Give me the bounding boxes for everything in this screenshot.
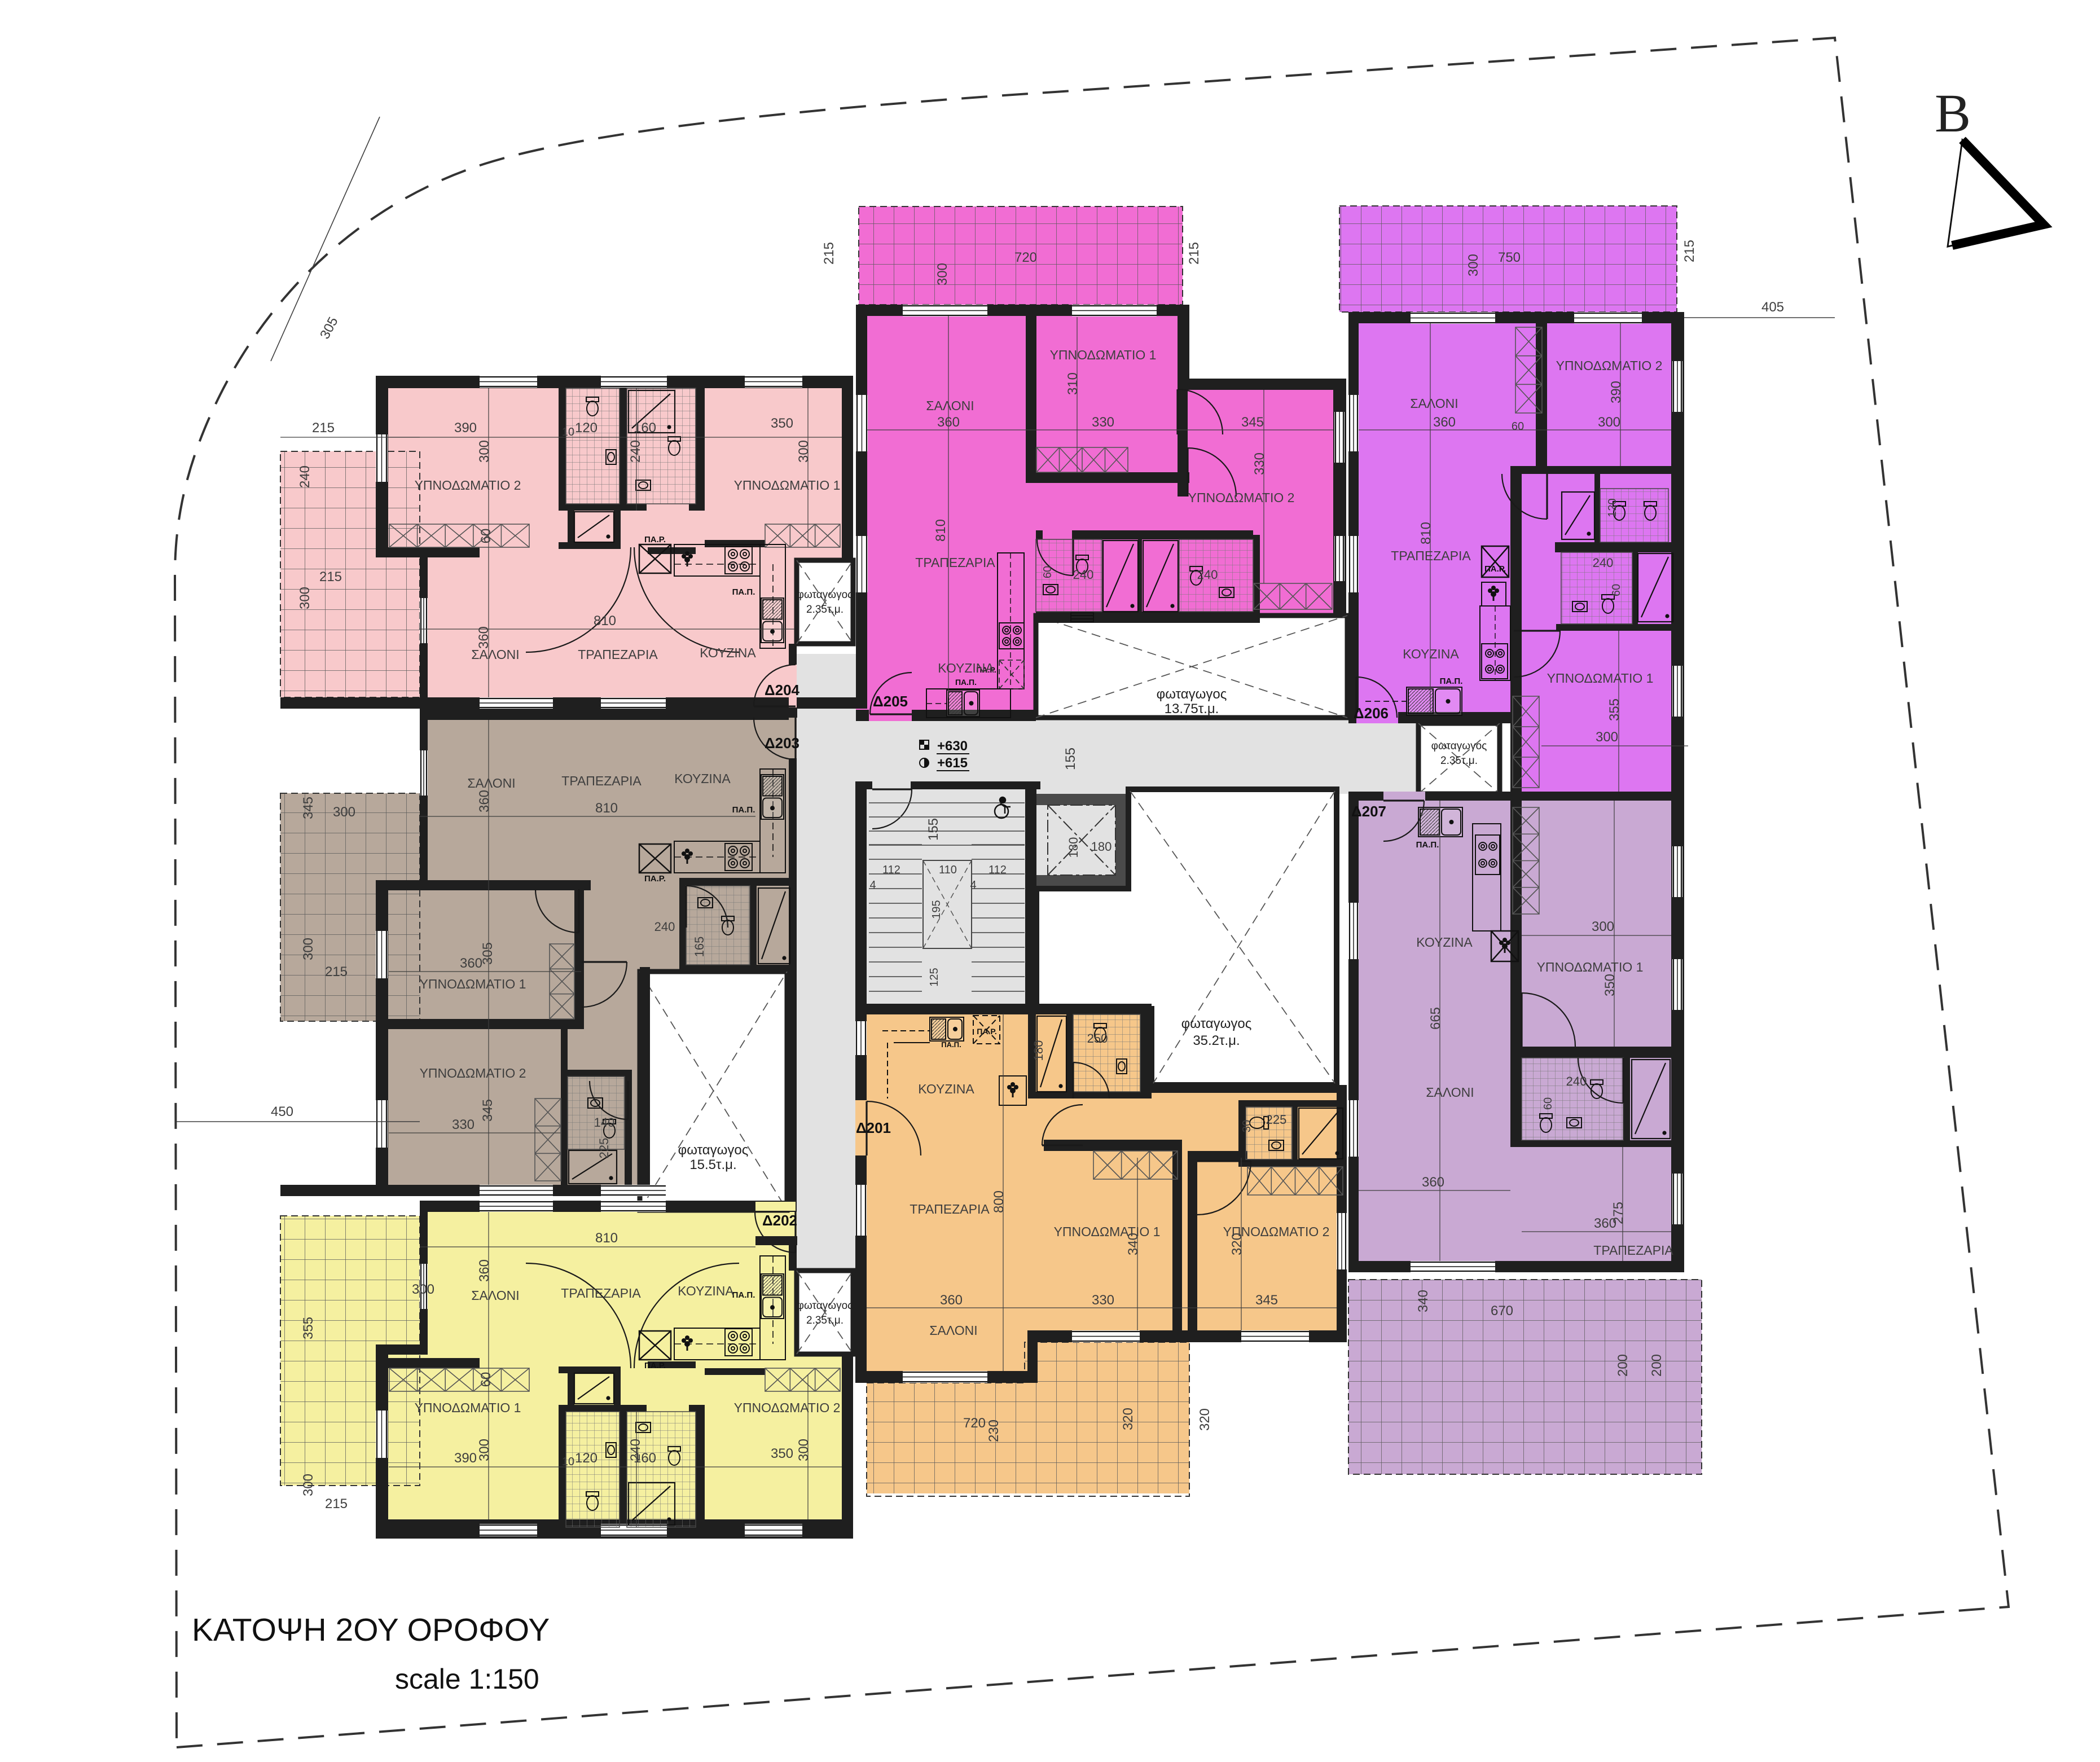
svg-text:60: 60 xyxy=(478,529,494,544)
svg-text:ΥΠΝΟΔΩΜΑΤΙΟ 1: ΥΠΝΟΔΩΜΑΤΙΟ 1 xyxy=(1537,960,1644,974)
svg-text:60: 60 xyxy=(1542,1097,1554,1110)
svg-text:ΠΑ.Π.: ΠΑ.Π. xyxy=(1416,840,1439,850)
svg-text:330: 330 xyxy=(1092,415,1114,430)
svg-text:360: 360 xyxy=(477,1259,492,1282)
svg-text:215: 215 xyxy=(325,1496,348,1511)
svg-text:4: 4 xyxy=(970,879,976,891)
svg-text:30: 30 xyxy=(1241,1120,1253,1132)
svg-text:225: 225 xyxy=(597,1138,611,1159)
svg-text:13.75τ.μ.: 13.75τ.μ. xyxy=(1165,701,1219,717)
svg-text:+615: +615 xyxy=(937,755,968,771)
svg-text:240: 240 xyxy=(1566,1074,1587,1088)
svg-text:230: 230 xyxy=(986,1420,1001,1442)
svg-text:300: 300 xyxy=(935,263,950,285)
svg-text:240: 240 xyxy=(628,440,643,463)
svg-text:10: 10 xyxy=(562,1456,574,1468)
svg-text:ΥΠΝΟΔΩΜΑΤΙΟ 1: ΥΠΝΟΔΩΜΑΤΙΟ 1 xyxy=(1054,1224,1161,1239)
svg-text:355: 355 xyxy=(1607,698,1622,721)
svg-text:300: 300 xyxy=(796,1439,811,1461)
svg-text:ΣΑΛΟΝΙ: ΣΑΛΟΝΙ xyxy=(1426,1085,1474,1100)
svg-text:ΤΡΑΠΕΖΑΡΙΑ: ΤΡΑΠΕΖΑΡΙΑ xyxy=(561,774,642,788)
svg-text:ΣΑΛΟΝΙ: ΣΑΛΟΝΙ xyxy=(926,398,974,413)
svg-text:60: 60 xyxy=(478,1372,494,1387)
svg-text:15.5τ.μ.: 15.5τ.μ. xyxy=(689,1157,736,1172)
svg-text:215: 215 xyxy=(1187,242,1202,265)
svg-text:360: 360 xyxy=(940,1293,963,1308)
svg-text:Δ206: Δ206 xyxy=(1354,705,1389,722)
svg-text:200: 200 xyxy=(1615,1354,1631,1377)
svg-text:300: 300 xyxy=(1598,415,1620,430)
svg-text:300: 300 xyxy=(477,1439,492,1461)
svg-text:350: 350 xyxy=(1602,974,1618,996)
svg-text:310: 310 xyxy=(1065,372,1080,395)
svg-text:360: 360 xyxy=(460,956,482,971)
svg-text:200: 200 xyxy=(1649,1354,1664,1377)
svg-text:300: 300 xyxy=(412,1282,434,1297)
svg-text:φωταγωγος: φωταγωγος xyxy=(1157,687,1227,702)
svg-text:155: 155 xyxy=(926,818,941,841)
svg-text:ΥΠΝΟΔΩΜΑΤΙΟ 1: ΥΠΝΟΔΩΜΑΤΙΟ 1 xyxy=(1050,348,1157,362)
svg-text:ΠΑ.Ρ.: ΠΑ.Ρ. xyxy=(644,535,666,544)
svg-text:φωταγωγος: φωταγωγος xyxy=(1431,740,1487,752)
svg-text:ΥΠΝΟΔΩΜΑΤΙΟ 1: ΥΠΝΟΔΩΜΑΤΙΟ 1 xyxy=(420,977,526,991)
svg-text:ΣΑΛΟΝΙ: ΣΑΛΟΝΙ xyxy=(471,1288,519,1303)
svg-text:810: 810 xyxy=(595,1231,618,1246)
svg-text:390: 390 xyxy=(1609,381,1624,403)
svg-text:ΥΠΝΟΔΩΜΑΤΙΟ 2: ΥΠΝΟΔΩΜΑΤΙΟ 2 xyxy=(1188,490,1295,505)
svg-text:ΥΠΝΟΔΩΜΑΤΙΟ 2: ΥΠΝΟΔΩΜΑΤΙΟ 2 xyxy=(1556,358,1663,373)
svg-text:720: 720 xyxy=(1014,250,1037,265)
svg-text:ΚΟΥΖΙΝΑ: ΚΟΥΖΙΝΑ xyxy=(674,771,731,786)
svg-text:450: 450 xyxy=(271,1104,293,1119)
svg-text:180: 180 xyxy=(1031,1040,1045,1061)
svg-text:800: 800 xyxy=(991,1190,1007,1213)
svg-text:330: 330 xyxy=(1092,1293,1114,1308)
svg-text:275: 275 xyxy=(1611,1202,1626,1224)
svg-text:Δ203: Δ203 xyxy=(765,735,799,752)
svg-text:ΚΟΥΖΙΝΑ: ΚΟΥΖΙΝΑ xyxy=(1416,935,1473,950)
svg-text:ΚΑΤΟΨΗ 2ΟΥ ΟΡΟΦΟΥ: ΚΑΤΟΨΗ 2ΟΥ ΟΡΟΦΟΥ xyxy=(192,1612,550,1648)
svg-text:300: 300 xyxy=(333,805,355,820)
svg-text:355: 355 xyxy=(301,1317,316,1339)
svg-text:140: 140 xyxy=(594,1115,615,1130)
svg-text:ΣΑΛΟΝΙ: ΣΑΛΟΝΙ xyxy=(1410,396,1458,411)
svg-text:300: 300 xyxy=(1466,254,1481,276)
svg-text:112: 112 xyxy=(882,864,900,876)
svg-text:225: 225 xyxy=(1266,1113,1287,1127)
svg-text:ΥΠΝΟΔΩΜΑΤΙΟ 1: ΥΠΝΟΔΩΜΑΤΙΟ 1 xyxy=(415,1400,521,1415)
svg-text:240: 240 xyxy=(1593,556,1614,570)
svg-text:φωταγωγος: φωταγωγος xyxy=(678,1143,749,1158)
svg-text:ΤΡΑΠΕΖΑΡΙΑ: ΤΡΑΠΕΖΑΡΙΑ xyxy=(1391,548,1471,563)
svg-text:φωταγωγος: φωταγωγος xyxy=(797,1300,853,1312)
svg-text:810: 810 xyxy=(595,801,618,816)
svg-text:120: 120 xyxy=(575,1451,598,1466)
svg-text:120: 120 xyxy=(1606,498,1619,517)
svg-text:240: 240 xyxy=(1197,568,1218,582)
svg-text:305: 305 xyxy=(480,942,495,965)
svg-text:ΤΡΑΠΕΖΑΡΙΑ: ΤΡΑΠΕΖΑΡΙΑ xyxy=(915,555,995,570)
svg-text:240: 240 xyxy=(1073,568,1094,582)
svg-text:215: 215 xyxy=(1682,240,1697,262)
svg-text:300: 300 xyxy=(301,938,316,960)
svg-text:ΥΠΝΟΔΩΜΑΤΙΟ 1: ΥΠΝΟΔΩΜΑΤΙΟ 1 xyxy=(734,478,841,493)
svg-text:+630: +630 xyxy=(937,739,968,754)
svg-text:360: 360 xyxy=(1433,415,1456,430)
svg-text:240: 240 xyxy=(297,465,313,488)
svg-text:300: 300 xyxy=(301,1474,316,1496)
svg-text:ΥΠΝΟΔΩΜΑΤΙΟ 2: ΥΠΝΟΔΩΜΑΤΙΟ 2 xyxy=(420,1066,526,1080)
svg-text:ΠΑ.Ρ.: ΠΑ.Ρ. xyxy=(644,1361,666,1370)
svg-text:Δ207: Δ207 xyxy=(1351,803,1386,820)
svg-text:320: 320 xyxy=(1121,1408,1136,1430)
svg-text:345: 345 xyxy=(480,1099,495,1122)
svg-text:180: 180 xyxy=(1091,840,1112,854)
svg-text:Δ202: Δ202 xyxy=(762,1212,797,1229)
svg-text:750: 750 xyxy=(1498,250,1521,265)
svg-text:ΚΟΥΖΙΝΑ: ΚΟΥΖΙΝΑ xyxy=(700,645,756,660)
svg-text:ΚΟΥΖΙΝΑ: ΚΟΥΖΙΝΑ xyxy=(918,1082,974,1096)
svg-text:390: 390 xyxy=(454,420,477,436)
svg-text:ΤΡΑΠΕΖΑΡΙΑ: ΤΡΑΠΕΖΑΡΙΑ xyxy=(578,647,658,662)
svg-text:345: 345 xyxy=(1255,1293,1278,1308)
svg-text:340: 340 xyxy=(1126,1233,1141,1255)
svg-text:320: 320 xyxy=(1229,1233,1245,1255)
svg-text:810: 810 xyxy=(1418,522,1434,544)
svg-text:810: 810 xyxy=(933,519,948,542)
svg-text:240: 240 xyxy=(628,1439,643,1461)
svg-text:ΠΑ.Π.: ΠΑ.Π. xyxy=(732,1290,755,1300)
svg-text:112: 112 xyxy=(989,864,1007,876)
svg-text:120: 120 xyxy=(575,420,598,436)
svg-text:345: 345 xyxy=(301,797,316,819)
svg-text:ΠΑ.Π.: ΠΑ.Π. xyxy=(732,587,755,597)
svg-text:360: 360 xyxy=(476,626,491,649)
svg-text:390: 390 xyxy=(454,1451,477,1466)
svg-text:195: 195 xyxy=(930,900,943,919)
svg-text:ΠΑ.Π.: ΠΑ.Π. xyxy=(1440,676,1463,686)
svg-text:110: 110 xyxy=(939,864,957,876)
svg-text:300: 300 xyxy=(796,440,811,463)
svg-text:35.2τ.μ.: 35.2τ.μ. xyxy=(1193,1033,1240,1048)
svg-text:665: 665 xyxy=(1428,1007,1443,1030)
svg-text:215: 215 xyxy=(821,242,837,265)
svg-text:60: 60 xyxy=(1512,420,1524,433)
svg-text:215: 215 xyxy=(319,569,342,585)
svg-text:2.35τ.μ.: 2.35τ.μ. xyxy=(806,1315,843,1326)
svg-text:180: 180 xyxy=(1066,837,1080,858)
svg-text:345: 345 xyxy=(1241,415,1264,430)
svg-text:scale 1:150: scale 1:150 xyxy=(395,1663,539,1695)
svg-text:810: 810 xyxy=(594,613,616,629)
svg-text:ΚΟΥΖΙΝΑ: ΚΟΥΖΙΝΑ xyxy=(938,661,994,675)
svg-text:ΣΑΛΟΝΙ: ΣΑΛΟΝΙ xyxy=(929,1323,977,1338)
svg-text:2.35τ.μ.: 2.35τ.μ. xyxy=(1440,755,1478,767)
svg-text:φωταγωγος: φωταγωγος xyxy=(1181,1016,1252,1031)
svg-text:B: B xyxy=(1935,83,1971,143)
svg-text:ΣΑΛΟΝΙ: ΣΑΛΟΝΙ xyxy=(467,776,515,790)
svg-text:ΠΑ.Π.: ΠΑ.Π. xyxy=(941,1040,961,1049)
svg-text:215: 215 xyxy=(312,420,335,436)
svg-text:φωταγωγος: φωταγωγος xyxy=(797,589,853,601)
svg-text:ΠΑ.Π.: ΠΑ.Π. xyxy=(732,805,755,815)
svg-text:10: 10 xyxy=(562,426,574,438)
svg-text:320: 320 xyxy=(1197,1408,1212,1431)
svg-text:ΚΟΥΖΙΝΑ: ΚΟΥΖΙΝΑ xyxy=(1403,647,1459,661)
svg-text:240: 240 xyxy=(654,920,675,934)
svg-text:60: 60 xyxy=(1610,584,1623,596)
svg-text:350: 350 xyxy=(771,1446,793,1461)
svg-text:ΥΠΝΟΔΩΜΑΤΙΟ 2: ΥΠΝΟΔΩΜΑΤΙΟ 2 xyxy=(734,1400,841,1415)
svg-text:Δ201: Δ201 xyxy=(856,1119,891,1136)
svg-text:165: 165 xyxy=(692,937,706,957)
svg-text:360: 360 xyxy=(1422,1175,1444,1190)
svg-text:ΥΠΝΟΔΩΜΑΤΙΟ 1: ΥΠΝΟΔΩΜΑΤΙΟ 1 xyxy=(1547,671,1654,686)
svg-text:250: 250 xyxy=(1087,1031,1108,1045)
svg-text:ΤΡΑΠΕΖΑΡΙΑ: ΤΡΑΠΕΖΑΡΙΑ xyxy=(1593,1243,1673,1258)
svg-text:300: 300 xyxy=(1592,919,1614,934)
svg-text:2.35τ.μ.: 2.35τ.μ. xyxy=(806,604,843,616)
svg-text:ΠΑ.Ρ.: ΠΑ.Ρ. xyxy=(644,874,666,884)
svg-text:ΥΠΝΟΔΩΜΑΤΙΟ 2: ΥΠΝΟΔΩΜΑΤΙΟ 2 xyxy=(415,478,521,493)
svg-text:215: 215 xyxy=(325,964,348,979)
svg-text:155: 155 xyxy=(1063,748,1078,770)
svg-text:ΠΑ.Π.: ΠΑ.Π. xyxy=(955,678,977,687)
svg-text:ΚΟΥΖΙΝΑ: ΚΟΥΖΙΝΑ xyxy=(678,1284,734,1298)
svg-text:300: 300 xyxy=(297,587,313,609)
svg-text:350: 350 xyxy=(771,416,793,431)
svg-text:125: 125 xyxy=(928,968,941,986)
svg-text:670: 670 xyxy=(1491,1303,1513,1319)
svg-text:300: 300 xyxy=(477,440,492,463)
svg-text:340: 340 xyxy=(1416,1290,1431,1312)
svg-text:330: 330 xyxy=(1252,452,1267,475)
svg-text:330: 330 xyxy=(452,1117,475,1132)
svg-text:360: 360 xyxy=(477,790,492,812)
svg-text:405: 405 xyxy=(1761,300,1784,315)
svg-text:ΠΑ.Ρ.: ΠΑ.Ρ. xyxy=(977,1027,997,1036)
svg-text:160: 160 xyxy=(634,420,656,436)
svg-text:Δ204: Δ204 xyxy=(765,682,800,698)
svg-text:4: 4 xyxy=(869,879,876,891)
svg-text:720: 720 xyxy=(963,1416,986,1431)
svg-text:ΠΑ.Ρ.: ΠΑ.Ρ. xyxy=(1484,564,1506,574)
svg-text:ΤΡΑΠΕΖΑΡΙΑ: ΤΡΑΠΕΖΑΡΙΑ xyxy=(561,1286,641,1300)
svg-text:60: 60 xyxy=(1042,566,1054,578)
svg-text:300: 300 xyxy=(1596,730,1618,745)
svg-text:Δ205: Δ205 xyxy=(873,693,908,710)
svg-text:ΤΡΑΠΕΖΑΡΙΑ: ΤΡΑΠΕΖΑΡΙΑ xyxy=(910,1202,990,1216)
